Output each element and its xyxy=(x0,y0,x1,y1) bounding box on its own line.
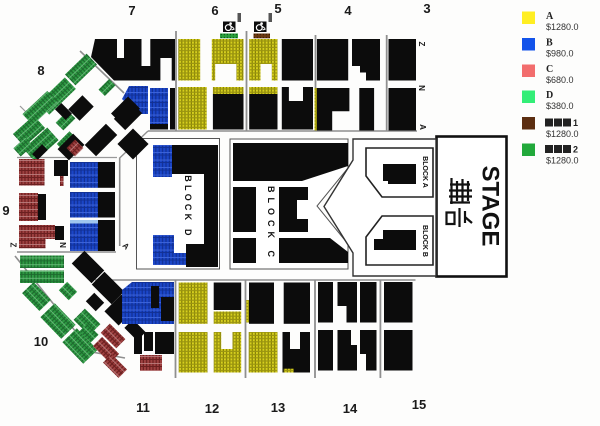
svg-text:10: 10 xyxy=(34,334,48,349)
svg-text:1: 1 xyxy=(573,118,578,128)
svg-text:BLOCK B: BLOCK B xyxy=(421,225,428,257)
svg-text:Z: Z xyxy=(9,243,18,248)
svg-text:A: A xyxy=(546,11,554,22)
svg-text:C: C xyxy=(546,64,553,75)
svg-text:$380.0: $380.0 xyxy=(546,101,574,111)
svg-text:Z: Z xyxy=(417,42,426,47)
svg-text:$1280.0: $1280.0 xyxy=(546,156,579,166)
svg-text:$980.0: $980.0 xyxy=(546,49,574,59)
svg-text:$1280.0: $1280.0 xyxy=(546,129,579,139)
svg-text:7: 7 xyxy=(128,3,135,18)
svg-text:STAGE: STAGE xyxy=(477,166,504,247)
svg-text:12: 12 xyxy=(205,401,219,416)
svg-text:2: 2 xyxy=(573,145,578,155)
svg-text:13: 13 xyxy=(271,400,285,415)
svg-text:9: 9 xyxy=(2,203,9,218)
svg-text:11: 11 xyxy=(136,400,150,415)
svg-text:D: D xyxy=(546,90,553,101)
svg-text:BLOCK A: BLOCK A xyxy=(421,156,428,188)
svg-text:BLOCK D: BLOCK D xyxy=(183,175,193,238)
svg-text:4: 4 xyxy=(344,3,352,18)
svg-text:14: 14 xyxy=(343,401,358,416)
svg-text:N: N xyxy=(58,242,67,248)
svg-text:5: 5 xyxy=(274,1,281,16)
svg-text:6: 6 xyxy=(211,3,218,18)
svg-text:15: 15 xyxy=(412,397,426,412)
svg-text:8: 8 xyxy=(37,63,44,78)
svg-text:$1280.0: $1280.0 xyxy=(546,22,579,32)
svg-text:B: B xyxy=(546,38,553,49)
svg-text:N: N xyxy=(417,85,426,91)
svg-text:3: 3 xyxy=(423,1,430,16)
svg-text:$680.0: $680.0 xyxy=(546,75,574,85)
svg-text:BLOCK C: BLOCK C xyxy=(266,186,276,262)
svg-text:A: A xyxy=(418,124,427,130)
